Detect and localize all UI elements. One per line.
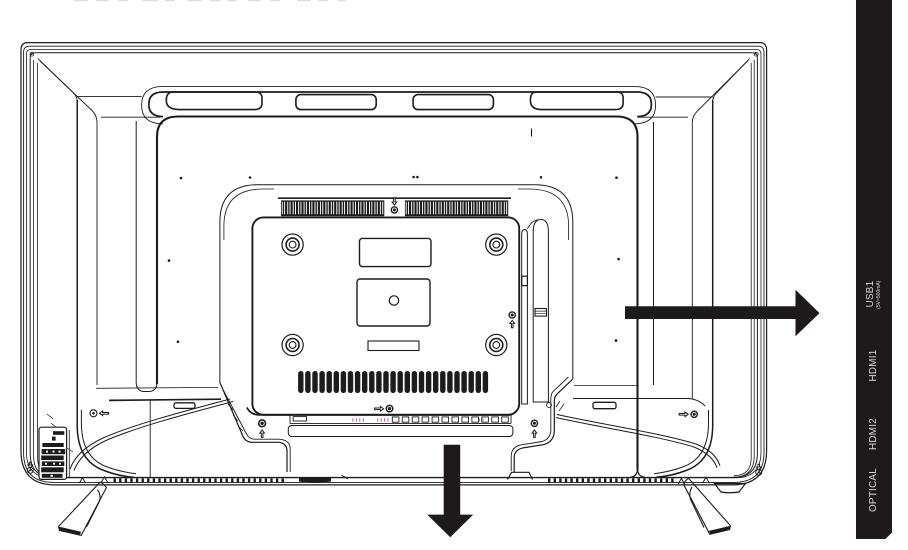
svg-text:HDMI1: HDMI1 xyxy=(868,349,879,381)
svg-text:OPTICAL: OPTICAL xyxy=(868,468,879,512)
svg-text:(5V=500mA): (5V=500mA) xyxy=(876,280,882,309)
svg-text:HDMI2: HDMI2 xyxy=(868,418,879,450)
svg-text:USB1: USB1 xyxy=(865,280,876,307)
